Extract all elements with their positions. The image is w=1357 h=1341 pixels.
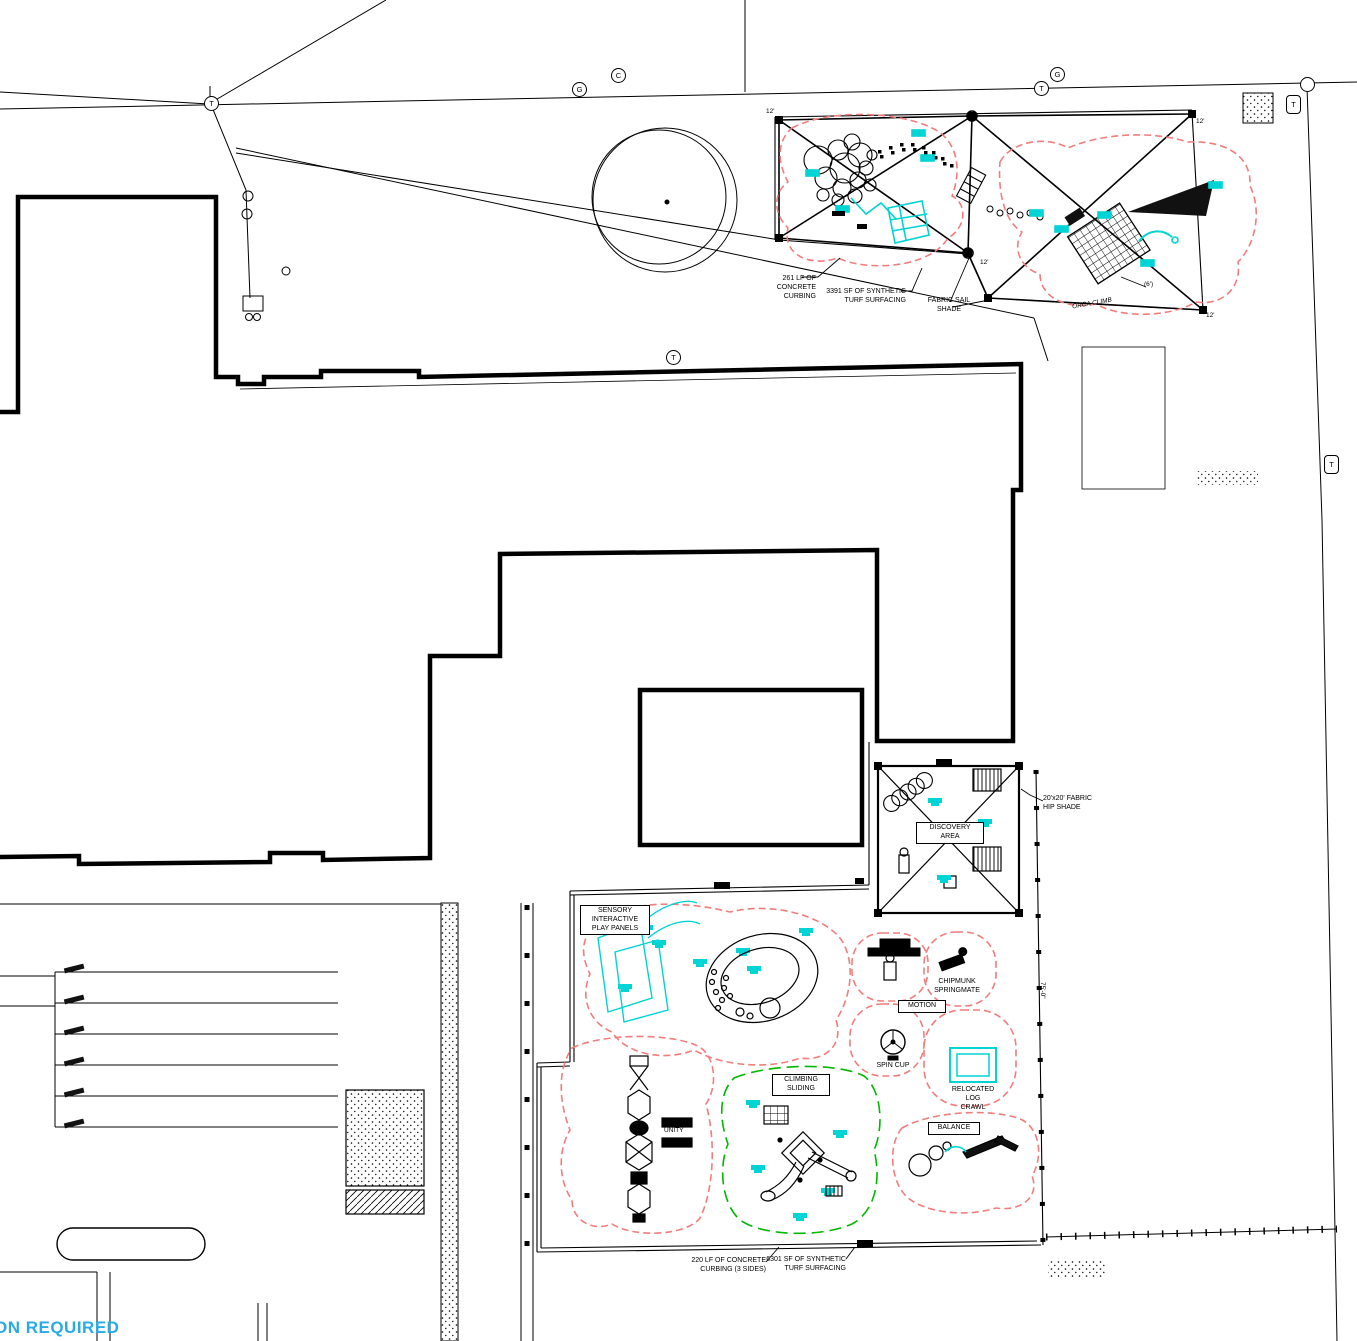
picnic-table [973,847,1001,871]
shade-dim-note: (6') [1144,281,1153,289]
chipmunk-springer [937,947,970,971]
post-height-label: 12' [980,259,988,267]
site-note-partial: ON REQUIRED [0,1318,119,1338]
picnic-table [973,769,1001,791]
site-plan-sheet: 261 LF OF CONCRETE CURBING 3391 SF OF SY… [0,0,1357,1341]
oval-track [695,919,830,1036]
site-plan-linework [0,0,1357,1341]
log-crawl-cyan [950,1048,996,1082]
upper-black-bits [832,211,867,229]
discovery-area-label: DISCOVERY AREA [916,822,984,844]
utility-badge-telephone: T [1324,455,1339,474]
post-height-label: 12' [1206,312,1214,320]
utility-marker-cable: C [611,68,626,83]
utility-marker-gas: G [1050,67,1065,82]
balance-equipment [909,1136,1018,1176]
stepper-pods [878,143,954,168]
walks-and-parking [0,903,533,1341]
utility-marker-gas: G [572,82,587,97]
lower-turf-note: 6301 SF OF SYNTHETIC TURF SURFACING [762,1256,846,1274]
upper-turf-note: 3391 SF OF SYNTHETIC TURF SURFACING [822,288,906,306]
building-interior-lines [240,347,1165,489]
hip-shade-note: 20'x20' FABRIC HIP SHADE [1043,795,1113,813]
fabric-sail-shade-note: FABRIC SAIL SHADE [918,297,980,315]
utility-marker-blank [1300,77,1315,92]
net-climber-hatched [1058,188,1150,284]
unity-climber [626,1056,692,1222]
unity-note: UNITY [664,1127,698,1135]
chipmunk-note: CHIPMUNK SPRINGMATE [925,978,989,996]
climbing-sliding-label: CLIMBING SLIDING [772,1074,830,1096]
post-height-label: 12' [1196,118,1204,126]
climbing-sliding-structure [761,1106,856,1201]
lower-curbing-note: 220 LF OF CONCRETE CURBING (3 SIDES) [680,1257,766,1275]
spring-toy [899,855,909,873]
upper-curbing-note: 261 LF OF CONCRETE CURBING [746,275,816,301]
lower-cyan-equipment [618,925,847,1221]
rope-fan [1128,180,1214,216]
hip-shade-leader [1021,789,1043,801]
spin-cup-note: SPIN CUP [868,1062,918,1071]
utility-badge-telephone: T [1286,95,1301,114]
wheel-stops [64,964,85,1129]
caterpillar-crawl [880,769,935,814]
sensory-panels-label: SENSORY INTERACTIVE PLAY PANELS [580,905,650,935]
balance-label: BALANCE [928,1122,980,1135]
playground-width-dim: 75'-0" [1038,982,1046,999]
utility-marker-telephone: T [204,96,219,111]
lower-playground-curbs [537,742,1043,1252]
utility-marker-telephone: T [1034,81,1049,96]
utility-marker-telephone: T [666,350,681,365]
log-crawl-note: RELOCATED LOG CRAWL [946,1086,1000,1112]
motion-label: MOTION [898,1000,946,1013]
post-height-label: 12' [766,108,774,116]
